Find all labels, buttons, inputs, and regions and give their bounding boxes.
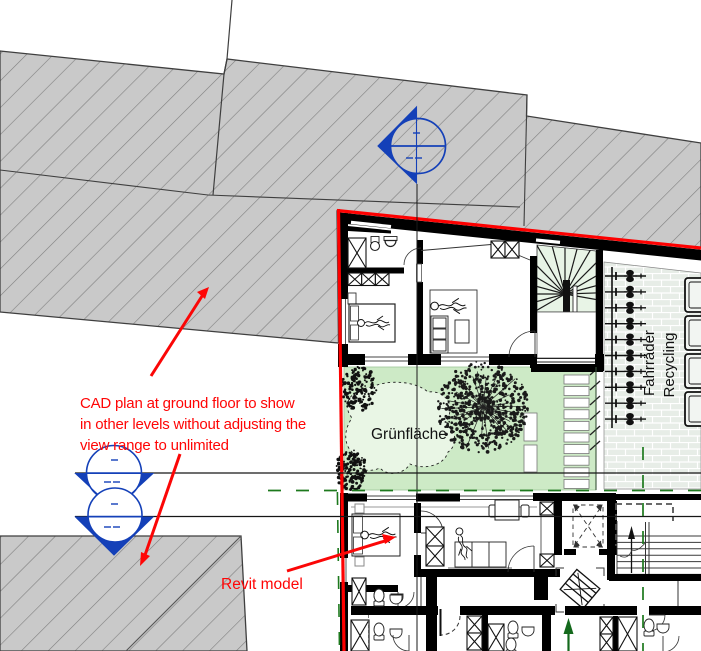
svg-text:Revit model: Revit model [221,576,303,593]
svg-text:in other levels without adjust: in other levels without adjusting the [80,416,306,433]
svg-text:view range to unlimited: view range to unlimited [80,437,229,454]
svg-text:Recycling: Recycling [661,332,678,397]
svg-text:CAD plan at ground floor to sh: CAD plan at ground floor to show [80,395,295,412]
svg-text:Grünfläche: Grünfläche [371,426,447,443]
svg-text:Fahrräder: Fahrräder [641,330,658,396]
